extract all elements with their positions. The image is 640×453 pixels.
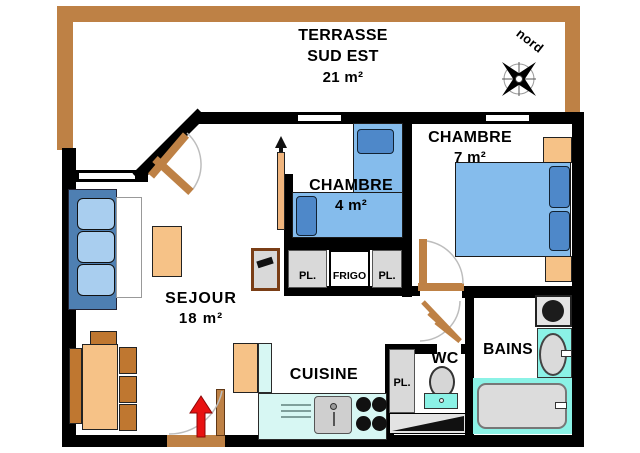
closet-pl-right-label: PL. bbox=[372, 250, 402, 286]
terrace-label: TERRASSE SUD EST 21 m² bbox=[287, 25, 399, 88]
stove-burner-3 bbox=[356, 416, 371, 431]
terrace-area: 21 m² bbox=[287, 67, 399, 88]
window-sejour bbox=[78, 172, 136, 180]
terrace-border-top bbox=[57, 6, 580, 22]
entry-arrow-icon bbox=[190, 396, 212, 437]
bathtub bbox=[477, 383, 567, 429]
stove-burner-1 bbox=[356, 397, 371, 412]
toilet-flush-button bbox=[439, 398, 444, 403]
dining-table bbox=[82, 344, 118, 430]
cuisine-label: CUISINE bbox=[281, 365, 367, 385]
chambre7-name: CHAMBRE bbox=[416, 128, 524, 148]
kitchen-cabinet bbox=[233, 343, 258, 393]
kitchen-counter-side bbox=[258, 343, 272, 393]
terrace-orientation: SUD EST bbox=[287, 46, 399, 67]
entry-threshold bbox=[167, 435, 225, 447]
bathtub-faucet bbox=[555, 402, 567, 409]
stove-burner-2 bbox=[372, 397, 387, 412]
chambre4-area: 4 m² bbox=[298, 196, 404, 216]
folding-door bbox=[420, 301, 460, 341]
wall-right bbox=[572, 112, 584, 447]
sejour-name: SEJOUR bbox=[150, 289, 252, 309]
chambre7-door-panel bbox=[419, 239, 427, 285]
hatch-box bbox=[389, 413, 466, 434]
bathroom-sink-faucet bbox=[561, 350, 572, 357]
chambre4-name: CHAMBRE bbox=[298, 176, 404, 196]
closet-frigo-label: FRIGO bbox=[329, 250, 370, 286]
fridge-vent-3 bbox=[281, 416, 311, 418]
chambre7-nightstand-top bbox=[543, 137, 572, 163]
terrace-border-right bbox=[565, 6, 580, 113]
fridge-vent-2 bbox=[281, 410, 311, 412]
dining-chair-right-3 bbox=[119, 404, 137, 431]
entry-door-panel bbox=[216, 389, 225, 436]
compass-rose-icon bbox=[502, 62, 536, 96]
window-chambre7 bbox=[485, 114, 530, 122]
sofa-cushion-1 bbox=[77, 198, 115, 230]
closet-pl-left-label: PL. bbox=[288, 250, 327, 286]
wall-closets-top bbox=[284, 238, 412, 250]
chambre7-pillow-top bbox=[549, 166, 570, 208]
sofa-cushion-3 bbox=[77, 264, 115, 296]
chambre7-nightstand-bottom bbox=[545, 256, 572, 282]
compass-north-label: nord bbox=[512, 24, 548, 58]
tv bbox=[251, 248, 280, 291]
kitchen-sink-faucet bbox=[330, 403, 337, 410]
terrace-border-left bbox=[57, 6, 73, 150]
dining-chair-right-1 bbox=[119, 347, 137, 374]
sliding-door-arrow-icon bbox=[275, 136, 287, 152]
chambre4-label: CHAMBRE 4 m² bbox=[298, 176, 404, 216]
window-chambre4 bbox=[297, 114, 342, 122]
kitchen-sink-drain-line bbox=[333, 412, 335, 426]
floor-plan: TERRASSE SUD EST 21 m² nord CHAMBRE 4 m²… bbox=[0, 0, 640, 453]
chambre7-pillow-bottom bbox=[549, 211, 570, 251]
coffee-table bbox=[152, 226, 182, 277]
sejour-area: 18 m² bbox=[150, 309, 252, 329]
chambre4-sliding-door bbox=[277, 152, 285, 230]
dining-bench-left bbox=[69, 348, 82, 424]
sofa-cushion-2 bbox=[77, 231, 115, 263]
dining-chair-right-2 bbox=[119, 376, 137, 403]
entry-door-arc bbox=[169, 391, 222, 434]
sofa-side-panel bbox=[116, 197, 142, 298]
sejour-label: SEJOUR 18 m² bbox=[150, 289, 252, 329]
washing-machine-drum bbox=[542, 300, 564, 322]
bains-label: BAINS bbox=[476, 340, 540, 360]
wc-closet-label: PL. bbox=[389, 349, 415, 393]
fridge-vent-1 bbox=[281, 404, 311, 406]
stove-burner-4 bbox=[372, 416, 387, 431]
terrace-name: TERRASSE bbox=[287, 25, 399, 46]
chambre4-pillow-top bbox=[357, 129, 394, 154]
wall-diagonal bbox=[133, 108, 207, 182]
